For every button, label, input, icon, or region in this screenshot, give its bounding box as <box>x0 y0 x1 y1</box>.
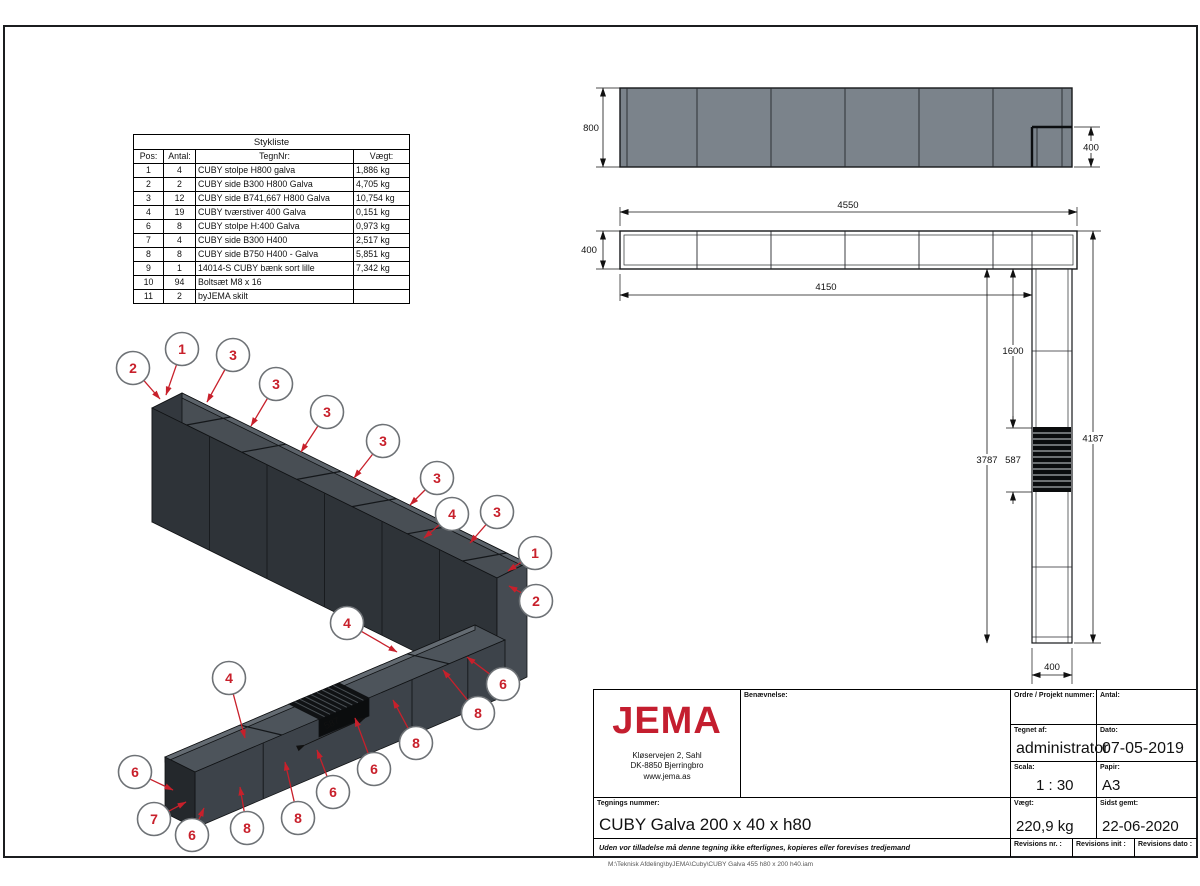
balloon-number: 8 <box>294 810 302 826</box>
balloon-number: 4 <box>448 506 456 522</box>
table-cell: 9 <box>134 262 164 276</box>
dim-leg-left: 3787 <box>976 455 997 466</box>
col-header-tegnnr: TegnNr: <box>196 150 354 164</box>
dim-leg-upper: 1600 <box>1002 346 1023 357</box>
drawing-sheet: { "page": { "file_path": "M:\\Teknisk Af… <box>0 0 1200 886</box>
balloon-number: 3 <box>433 470 441 486</box>
dim-bench: 587 <box>1005 455 1021 466</box>
antal-label: Antal: <box>1100 692 1120 699</box>
table-cell: CUBY side B741,667 H800 Galva <box>196 192 354 206</box>
table-cell: 1 <box>164 262 196 276</box>
table-cell: 11 <box>134 290 164 304</box>
table-cell: 10 <box>134 276 164 290</box>
papir-cell: Papir: A3 <box>1097 762 1197 798</box>
isometric-view: 587 21333334312468866467688 <box>90 330 570 862</box>
revisions-dato-label: Revisions dato : <box>1138 841 1192 848</box>
table-cell: CUBY side B300 H800 Galva <box>196 178 354 192</box>
tegnet-af-cell: Tegnet af: administrator <box>1011 725 1097 762</box>
plan-view: 4550 400 4150 <box>581 200 1109 684</box>
sidst-gemt-cell: Sidst gemt: 22-06-2020 <box>1097 798 1197 839</box>
balloon-number: 1 <box>531 545 539 561</box>
parts-list-table: Stykliste Pos: Antal: TegnNr: Vægt: 14CU… <box>133 134 410 304</box>
balloon-number: 6 <box>131 764 139 780</box>
vaegt-label: Vægt: <box>1014 800 1034 807</box>
balloon-leader <box>144 381 160 399</box>
table-cell: CUBY stolpe H:400 Galva <box>196 220 354 234</box>
table-cell: Boltsæt M8 x 16 <box>196 276 354 290</box>
table-cell: 10,754 kg <box>354 192 410 206</box>
balloon-leader <box>410 490 425 505</box>
table-cell: 8 <box>164 248 196 262</box>
col-header-vaegt: Vægt: <box>354 150 410 164</box>
table-cell: 2,517 kg <box>354 234 410 248</box>
table-cell: 4 <box>164 164 196 178</box>
antal-cell: Antal: <box>1097 690 1197 725</box>
disclaimer-text: Uden vor tilladelse må denne tegning ikk… <box>599 843 910 852</box>
dato-cell: Dato: 07-05-2019 <box>1097 725 1197 762</box>
table-cell: 5,851 kg <box>354 248 410 262</box>
dim-elevation-height: 800 <box>583 123 599 134</box>
table-cell: 4 <box>164 234 196 248</box>
table-cell: CUBY side B300 H400 <box>196 234 354 248</box>
balloon-number: 6 <box>499 676 507 692</box>
table-cell <box>354 290 410 304</box>
sidst-gemt-label: Sidst gemt: <box>1100 800 1138 807</box>
balloon-number: 8 <box>474 705 482 721</box>
balloon-number: 3 <box>272 376 280 392</box>
jema-logo: JEMA <box>594 700 740 743</box>
table-cell: 0,151 kg <box>354 206 410 220</box>
vaegt-cell: Vægt: 220,9 kg <box>1011 798 1097 839</box>
table-row: 112byJEMA skilt <box>134 290 410 304</box>
scala-label: Scala: <box>1014 764 1035 771</box>
table-cell: CUBY side B750 H400 - Galva <box>196 248 354 262</box>
table-cell: 1 <box>134 164 164 178</box>
scala-cell: Scala: 1 : 30 <box>1011 762 1097 798</box>
table-cell: 2 <box>134 178 164 192</box>
balloon-number: 4 <box>343 615 351 631</box>
orthographic-views: 800 400 4550 400 4150 <box>570 60 1200 692</box>
dim-leg-width: 400 <box>1044 662 1060 673</box>
table-row: 419CUBY tværstiver 400 Galva0,151 kg <box>134 206 410 220</box>
balloon-number: 3 <box>493 504 501 520</box>
tegnings-nummer-label: Tegnings nummer: <box>597 800 659 807</box>
table-cell: 2 <box>164 178 196 192</box>
table-row: 68CUBY stolpe H:400 Galva0,973 kg <box>134 220 410 234</box>
balloon-number: 2 <box>532 593 540 609</box>
table-cell: 12 <box>164 192 196 206</box>
table-row: 22CUBY side B300 H800 Galva4,705 kg <box>134 178 410 192</box>
table-cell: 8 <box>134 248 164 262</box>
tegnings-nummer-value: CUBY Galva 200 x 40 x h80 <box>599 815 811 835</box>
balloon-number: 1 <box>178 341 186 357</box>
address-line: www.jema.as <box>594 772 740 782</box>
tegnet-af-label: Tegnet af: <box>1014 727 1047 734</box>
bench-plan <box>1033 427 1071 492</box>
papir-value: A3 <box>1102 777 1120 794</box>
revisions-init-cell: Revisions init : <box>1073 839 1135 857</box>
ordre-label: Ordre / Projekt nummer: <box>1014 692 1095 699</box>
table-cell: 0,973 kg <box>354 220 410 234</box>
papir-label: Papir: <box>1100 764 1120 771</box>
revisions-nr-label: Revisions nr. : <box>1014 841 1062 848</box>
dim-plan-total: 4550 <box>837 200 858 211</box>
table-cell <box>354 276 410 290</box>
dato-label: Dato: <box>1100 727 1118 734</box>
balloon-number: 3 <box>323 404 331 420</box>
dim-leg-overall: 4187 <box>1082 434 1103 445</box>
balloon-number: 6 <box>188 827 196 843</box>
balloon-number: 3 <box>229 347 237 363</box>
table-cell: CUBY stolpe H800 galva <box>196 164 354 178</box>
balloon-number: 8 <box>412 735 420 751</box>
revisions-dato-cell: Revisions dato : <box>1135 839 1197 857</box>
balloon-number: 3 <box>379 433 387 449</box>
address-line: Kløservejen 2, Sahl <box>594 751 740 761</box>
balloon-number: 6 <box>329 784 337 800</box>
tegnet-af-value: administrator <box>1016 740 1108 758</box>
sidst-gemt-value: 22-06-2020 <box>1102 818 1179 835</box>
table-cell: 3 <box>134 192 164 206</box>
table-cell: 2 <box>164 290 196 304</box>
table-cell: 14014-S CUBY bænk sort lille <box>196 262 354 276</box>
balloon-leader <box>251 399 267 426</box>
tegnings-nummer-cell: Tegnings nummer: CUBY Galva 200 x 40 x h… <box>594 798 1011 839</box>
balloon-leader <box>301 426 318 452</box>
balloon-number: 7 <box>150 811 158 827</box>
table-cell: 94 <box>164 276 196 290</box>
revisions-nr-cell: Revisions nr. : <box>1011 839 1073 857</box>
table-cell: 4,705 kg <box>354 178 410 192</box>
balloon-number: 4 <box>225 670 233 686</box>
company-address: Kløservejen 2, Sahl DK-8850 Bjerringbro … <box>594 751 740 782</box>
table-row: 74CUBY side B300 H4002,517 kg <box>134 234 410 248</box>
col-header-pos: Pos: <box>134 150 164 164</box>
balloon-number: 6 <box>370 761 378 777</box>
table-row: 9114014-S CUBY bænk sort lille7,342 kg <box>134 262 410 276</box>
address-line: DK-8850 Bjerringbro <box>594 761 740 771</box>
dim-elevation-step: 400 <box>1083 143 1099 154</box>
table-cell: 7,342 kg <box>354 262 410 276</box>
parts-list-title: Stykliste <box>134 135 410 150</box>
table-row: 1094Boltsæt M8 x 16 <box>134 276 410 290</box>
dato-value: 07-05-2019 <box>1102 740 1184 758</box>
balloon-leader <box>166 365 176 395</box>
balloon-number: 8 <box>243 820 251 836</box>
ordre-cell: Ordre / Projekt nummer: <box>1011 690 1097 725</box>
disclaimer-cell: Uden vor tilladelse må denne tegning ikk… <box>594 839 1011 857</box>
vaegt-value: 220,9 kg <box>1016 818 1074 835</box>
table-cell: 1,886 kg <box>354 164 410 178</box>
benaevnelse-label: Benævnelse: <box>744 692 788 699</box>
elevation-view: 800 400 <box>583 88 1103 167</box>
dim-plan-inner: 4150 <box>815 282 836 293</box>
table-cell: 6 <box>134 220 164 234</box>
table-cell: 19 <box>164 206 196 220</box>
revisions-init-label: Revisions init : <box>1076 841 1126 848</box>
table-row: 88CUBY side B750 H400 - Galva5,851 kg <box>134 248 410 262</box>
file-path: M:\Teknisk Afdeling\byJEMA\Cuby\CUBY Gal… <box>608 861 813 868</box>
balloon-number: 2 <box>129 360 137 376</box>
table-cell: byJEMA skilt <box>196 290 354 304</box>
table-row: 312CUBY side B741,667 H800 Galva10,754 k… <box>134 192 410 206</box>
col-header-antal: Antal: <box>164 150 196 164</box>
table-cell: 7 <box>134 234 164 248</box>
balloon-leader <box>354 454 373 478</box>
table-row: 14CUBY stolpe H800 galva1,886 kg <box>134 164 410 178</box>
scala-value: 1 : 30 <box>1036 777 1074 794</box>
balloon-leader <box>207 370 225 402</box>
logo-cell: JEMA Kløservejen 2, Sahl DK-8850 Bjerrin… <box>594 690 741 798</box>
table-cell: 8 <box>164 220 196 234</box>
table-cell: 4 <box>134 206 164 220</box>
table-cell: CUBY tværstiver 400 Galva <box>196 206 354 220</box>
dim-plan-depth: 400 <box>581 245 597 256</box>
benaevnelse-cell: Benævnelse: <box>741 690 1011 798</box>
title-block: JEMA Kløservejen 2, Sahl DK-8850 Bjerrin… <box>593 689 1196 856</box>
